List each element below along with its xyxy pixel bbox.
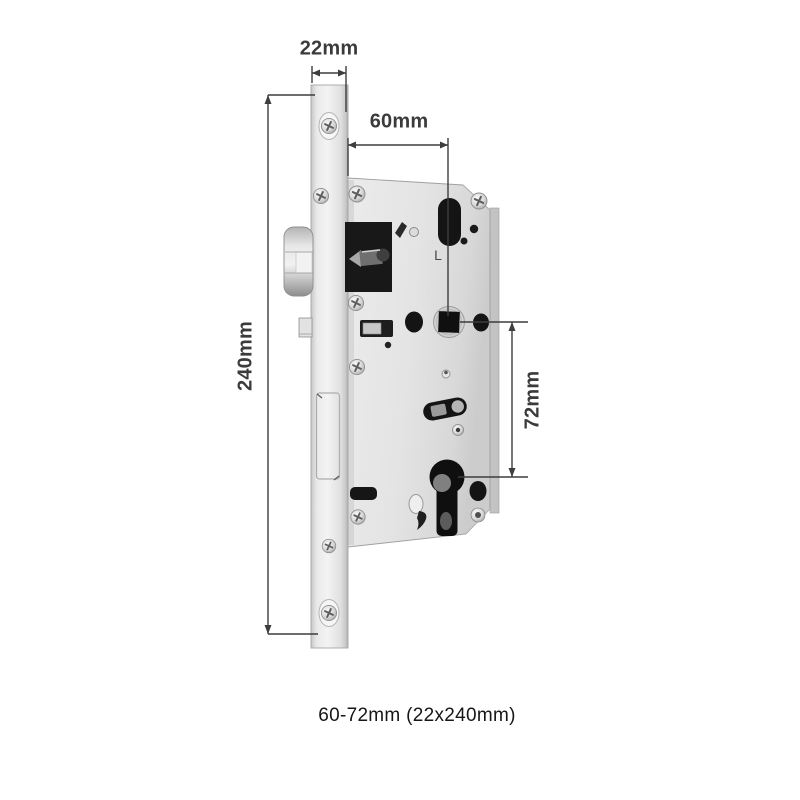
- hanger-slot: [438, 198, 461, 246]
- dim-label-faceplate-width: 22mm: [300, 38, 359, 61]
- handing-stamp: L: [434, 247, 442, 263]
- light-hole-left: [409, 495, 423, 514]
- faceplate-screw-lower: [322, 539, 336, 553]
- dim-faceplate-height-lines: [265, 95, 319, 634]
- product-diagram: 22mm 60mm 240mm 72mm L 60-72mm (22x240mm…: [0, 0, 800, 800]
- dim-label-faceplate-height: 240mm: [235, 321, 258, 391]
- faceplate-countersunk-screw-bottom: [319, 600, 339, 627]
- screw-bottom-right: [471, 508, 485, 522]
- faceplate-countersunk-screw-top: [319, 113, 339, 140]
- small-guide-hole: [442, 370, 450, 378]
- case-screw-top-right: [471, 193, 487, 209]
- handle-screw-hole-left: [405, 312, 423, 333]
- case-screw-mid-left: [348, 295, 363, 310]
- faceplate: [311, 85, 348, 648]
- small-pin-hole: [385, 342, 391, 348]
- latch-bolt: [284, 227, 313, 296]
- small-screw-mid: [453, 425, 464, 436]
- stop-slide-slot: [360, 320, 393, 337]
- lock-body: [284, 85, 499, 648]
- spindle-follower: [434, 307, 465, 338]
- size-caption: 60-72mm (22x240mm): [318, 705, 516, 727]
- pin-hole-a: [461, 238, 468, 245]
- deadbolt-stump-slot: [350, 487, 377, 500]
- latch-mechanism-window: [345, 222, 392, 292]
- dim-label-center-distance: 72mm: [522, 371, 545, 430]
- dim-label-backset: 60mm: [370, 111, 429, 134]
- auxiliary-bolt-tab: [299, 318, 312, 337]
- case-screw-lower-left: [349, 359, 364, 374]
- pin-hole-b: [470, 225, 478, 233]
- faceplate-screw-upper: [313, 188, 328, 203]
- fixing-hole-right: [470, 481, 487, 501]
- case-screw-top-left: [349, 186, 365, 202]
- case-side-flange: [490, 208, 499, 513]
- pivot-ring-hole: [410, 228, 419, 237]
- case-screw-bottom-left: [351, 510, 365, 524]
